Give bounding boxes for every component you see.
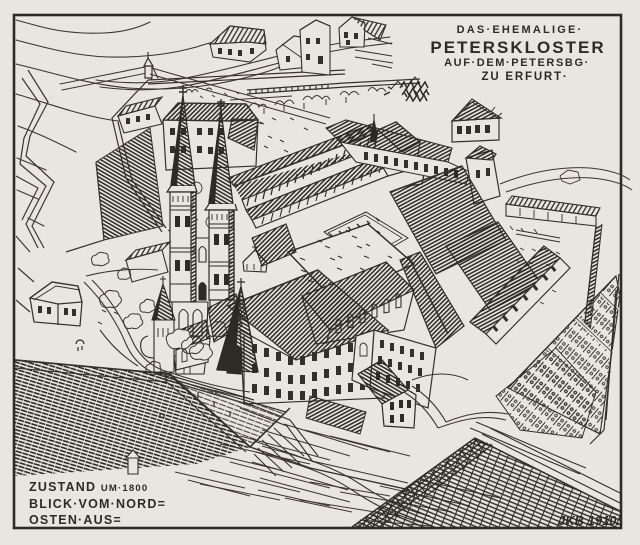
svg-text:AUF·DEM·PETERSBG·: AUF·DEM·PETERSBG· xyxy=(444,57,590,69)
svg-text:PETERSKLOSTER: PETERSKLOSTER xyxy=(430,38,605,57)
svg-text:BLICK·VOM·NORD=: BLICK·VOM·NORD= xyxy=(29,497,166,511)
svg-text:ZU ERFURT·: ZU ERFURT· xyxy=(482,71,569,83)
svg-text:JKB 1910:: JKB 1910: xyxy=(558,513,621,528)
svg-text:ZUSTAND UM·1800: ZUSTAND UM·1800 xyxy=(29,480,148,494)
svg-text:DAS·EHEMALIGE·: DAS·EHEMALIGE· xyxy=(457,24,584,36)
svg-text:OSTEN·AUS=: OSTEN·AUS= xyxy=(29,513,122,527)
